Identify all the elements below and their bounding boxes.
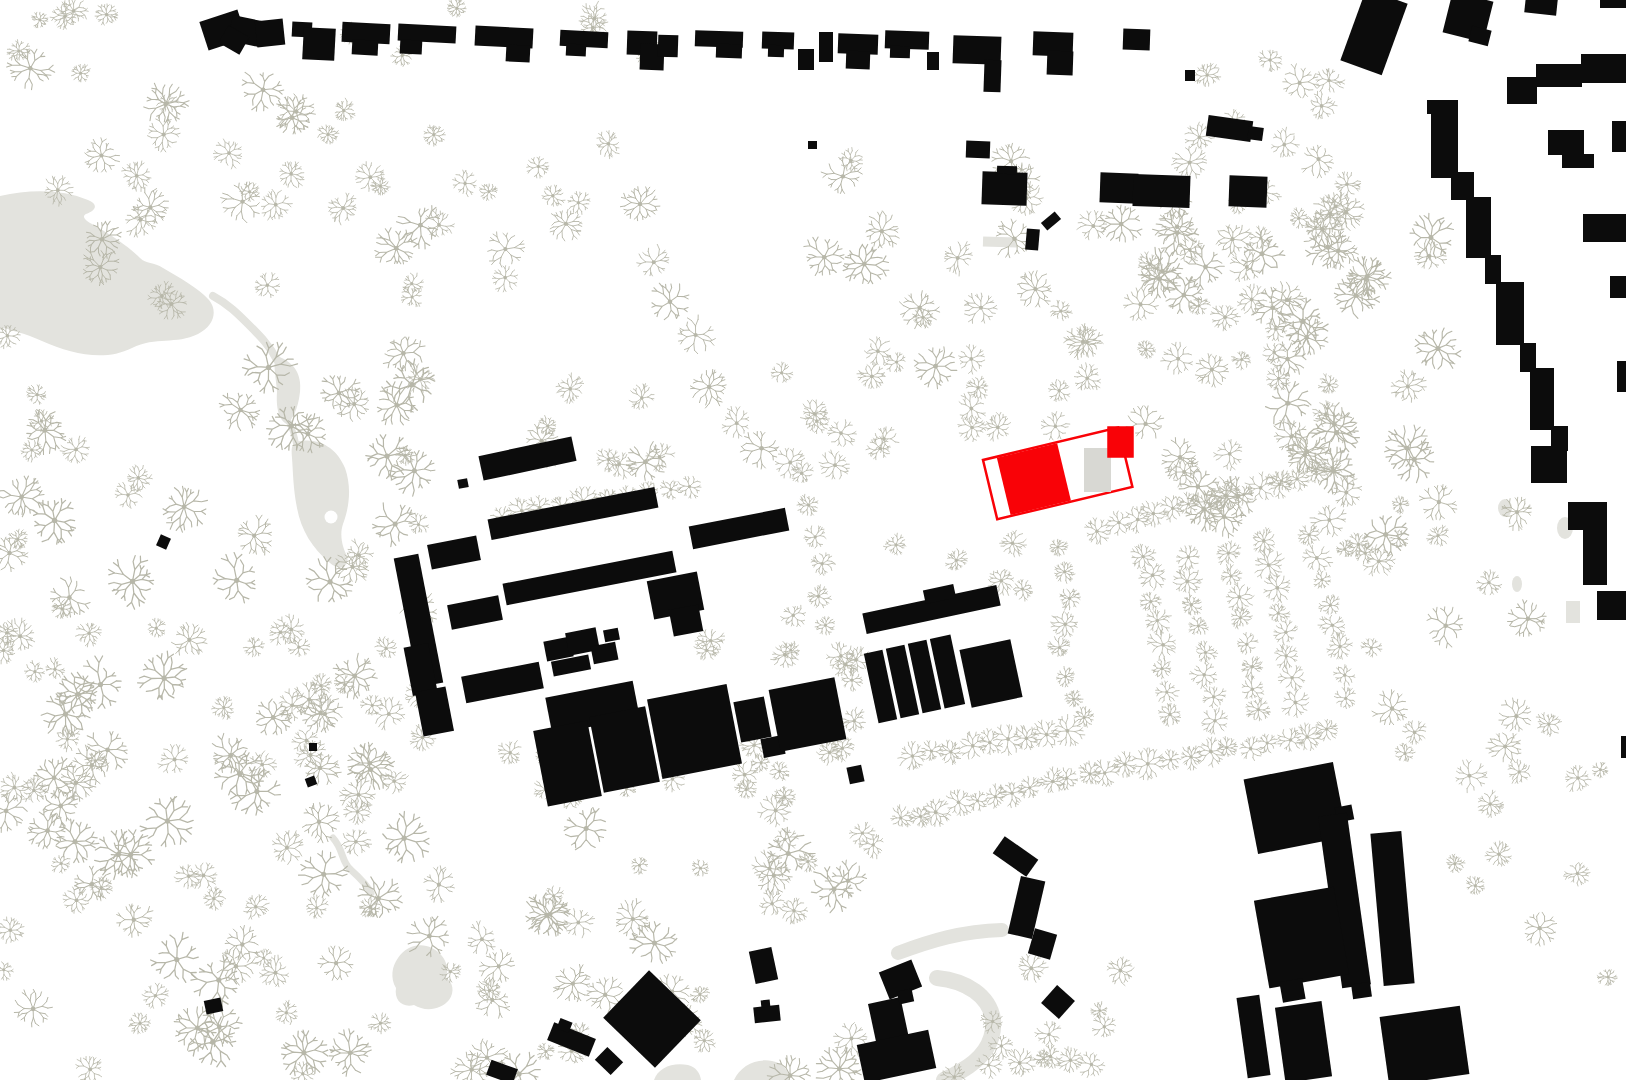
tree-trunk <box>28 66 33 71</box>
tree-trunk <box>261 87 266 92</box>
tree-trunk <box>1297 217 1300 220</box>
tree-trunk <box>1068 597 1071 600</box>
tree-trunk <box>1308 533 1311 536</box>
tree-trunk <box>99 153 103 157</box>
tree-trunk <box>187 638 191 642</box>
tree-trunk <box>165 819 170 824</box>
tree-trunk <box>105 748 110 753</box>
building <box>1123 29 1151 51</box>
tree-trunk <box>262 957 265 960</box>
tree-trunk <box>174 957 179 962</box>
tree-trunk <box>688 485 691 488</box>
tree-trunk <box>853 719 856 722</box>
tree-trunk <box>1273 351 1276 354</box>
tree-trunk <box>1197 624 1200 627</box>
tree-trunk <box>1321 578 1324 581</box>
tree-trunk <box>1227 551 1230 554</box>
tree-trunk <box>1236 494 1241 499</box>
tree-trunk <box>1000 579 1004 583</box>
building <box>846 51 871 70</box>
tree-trunk <box>1331 469 1336 474</box>
building <box>769 677 847 752</box>
tree-trunk <box>87 632 90 635</box>
tree-trunk <box>393 522 398 527</box>
tree-trunk <box>957 801 961 805</box>
tree-trunk <box>1028 786 1031 789</box>
tree-trunk <box>1240 358 1243 361</box>
building <box>658 35 679 58</box>
tree-trunk <box>1327 518 1331 522</box>
tree-trunk <box>2 649 5 652</box>
tree-trunk <box>1538 926 1542 930</box>
tree-trunk <box>1209 750 1213 754</box>
tree-trunk <box>1213 719 1217 723</box>
tree-trunk <box>698 993 701 996</box>
building <box>1562 154 1594 168</box>
tree-trunk <box>490 998 494 1002</box>
tree-trunk <box>1222 514 1227 519</box>
tree-trunk <box>18 634 22 638</box>
tree-trunk <box>162 676 167 681</box>
tree-trunk <box>1204 651 1207 654</box>
tree-trunk <box>921 316 924 319</box>
tree-trunk <box>271 715 276 720</box>
tree-trunk <box>1399 503 1402 506</box>
tree-trunk <box>1054 425 1058 429</box>
tree-trunk <box>1088 772 1091 775</box>
tree-trunk <box>652 260 656 264</box>
tree-trunk <box>58 804 63 809</box>
tree-trunk <box>89 882 94 887</box>
tree-trunk <box>437 223 441 227</box>
tree-trunk <box>73 839 78 844</box>
tree-trunk <box>155 627 158 630</box>
tree-trunk <box>135 174 139 178</box>
tree-trunk <box>759 446 764 451</box>
tree-trunk <box>1316 157 1320 161</box>
tree-trunk <box>934 810 938 814</box>
tree-trunk <box>668 299 673 304</box>
building <box>669 604 704 636</box>
tree-trunk <box>1327 79 1331 83</box>
tree-trunk <box>1202 673 1206 677</box>
tree-trunk <box>387 712 391 716</box>
tree-trunk <box>1117 521 1121 525</box>
building <box>1621 736 1626 758</box>
tree-trunk <box>1428 254 1432 258</box>
tree-trunk <box>1058 389 1061 392</box>
tree-trunk <box>745 788 748 791</box>
tree-trunk <box>94 759 97 762</box>
building <box>475 25 534 48</box>
tree-trunk <box>401 351 406 356</box>
building <box>1466 197 1491 258</box>
tree-trunk <box>548 912 553 917</box>
tree-trunk <box>328 579 333 584</box>
tree-trunk <box>1029 966 1033 970</box>
tree-trunk <box>1599 768 1602 771</box>
tree-trunk <box>202 874 206 878</box>
tree-trunk <box>1165 691 1168 694</box>
tree-trunk <box>301 1072 304 1075</box>
tree-trunk <box>517 1072 522 1077</box>
tree-trunk <box>760 761 763 764</box>
tree-trunk <box>699 867 702 870</box>
tree-trunk <box>1178 455 1183 460</box>
tree-trunk <box>671 777 674 780</box>
tree-trunk <box>254 789 259 794</box>
building <box>1597 591 1626 620</box>
building <box>1431 112 1458 178</box>
building <box>819 32 833 62</box>
tree-trunk <box>437 883 441 887</box>
tree-trunk <box>1436 534 1439 537</box>
tree-trunk <box>841 174 845 178</box>
building <box>981 171 1027 206</box>
tree-trunk <box>98 265 102 269</box>
tree-trunk <box>1289 738 1293 742</box>
building <box>1600 0 1626 8</box>
building <box>1612 121 1626 152</box>
tree-trunk <box>16 538 19 541</box>
tree-trunk <box>870 375 874 379</box>
tree-trunk <box>640 396 644 400</box>
tree-trunk <box>894 543 897 546</box>
tree-trunk <box>841 747 844 750</box>
tree-trunk <box>1298 81 1302 85</box>
tree-trunk <box>844 663 847 666</box>
tree-trunk <box>376 896 381 901</box>
tree-trunk <box>456 7 459 10</box>
tree-trunk <box>52 775 57 780</box>
tree-trunk <box>1090 1063 1093 1066</box>
tree-trunk <box>19 495 24 500</box>
tree-trunk <box>1377 559 1381 563</box>
tree-trunk <box>357 793 361 797</box>
building <box>1025 228 1040 250</box>
tree-trunk <box>60 862 63 865</box>
tree-trunk <box>306 432 311 437</box>
tree-trunk <box>592 16 596 20</box>
tree-trunk <box>297 646 300 649</box>
tree-trunk <box>631 917 635 921</box>
tree-trunk <box>7 551 11 555</box>
tree-trunk <box>828 751 831 754</box>
tree-trunk <box>248 190 251 193</box>
tree-trunk <box>138 1022 141 1025</box>
tree-trunk <box>1285 654 1288 657</box>
tree-trunk <box>1063 570 1066 573</box>
tree-trunk <box>116 852 121 857</box>
building <box>302 27 336 61</box>
tree-trunk <box>38 19 41 22</box>
tree-trunk <box>1176 357 1180 361</box>
tree-trunk <box>970 426 974 430</box>
building <box>1099 172 1138 203</box>
tree-trunk <box>105 13 108 16</box>
tree-trunk <box>1315 556 1319 560</box>
tree-trunk <box>1009 159 1013 163</box>
building <box>1047 51 1074 76</box>
tree-trunk <box>752 743 756 747</box>
tree-trunk <box>1095 530 1098 533</box>
tree-trunk <box>1156 619 1159 622</box>
building <box>1548 130 1584 155</box>
tree-trunk <box>187 875 191 879</box>
tree-trunk <box>352 674 357 679</box>
tree-trunk <box>652 941 657 946</box>
tree-trunk <box>1245 265 1249 269</box>
tree-trunk <box>638 202 642 206</box>
tree-trunk <box>783 838 786 841</box>
tree-trunk <box>1285 401 1290 406</box>
tree-trunk <box>368 175 372 179</box>
tree-trunk <box>1149 600 1152 603</box>
tree-trunk <box>638 864 641 867</box>
tree-trunk <box>643 460 648 465</box>
building <box>798 49 814 70</box>
tree-trunk <box>1453 862 1456 865</box>
building <box>1530 368 1554 430</box>
tree-trunk <box>56 188 60 192</box>
tree-trunk <box>318 766 322 770</box>
tree-trunk <box>342 109 345 112</box>
building <box>1380 1006 1470 1080</box>
tree-trunk <box>1576 872 1579 875</box>
tree-trunk <box>1119 222 1124 227</box>
tree-trunk <box>216 977 221 982</box>
building <box>753 1005 781 1024</box>
tree-trunk <box>1390 706 1394 710</box>
building <box>1583 528 1607 585</box>
tree-trunk <box>1285 298 1289 302</box>
tree-trunk <box>289 172 293 176</box>
building <box>1451 172 1474 200</box>
tree-trunk <box>1012 237 1016 241</box>
tree-trunk <box>148 205 152 209</box>
tree-trunk <box>1188 160 1192 164</box>
tree-trunk <box>1119 969 1123 973</box>
tree-trunk <box>1212 695 1215 698</box>
tree-trunk <box>1168 713 1171 716</box>
tree-trunk <box>788 461 792 465</box>
tree-trunk <box>1196 484 1201 489</box>
tree-trunk <box>1607 976 1610 979</box>
tree-trunk <box>240 942 244 946</box>
tree-trunk <box>919 815 922 818</box>
building <box>1536 64 1582 87</box>
tree-trunk <box>1383 532 1388 537</box>
tree-trunk <box>930 750 933 753</box>
tree-trunk <box>1315 470 1318 473</box>
tree-trunk <box>971 744 975 748</box>
tree-trunk <box>126 493 130 497</box>
tree-trunk <box>227 151 231 155</box>
building <box>1427 100 1458 114</box>
tree-trunk <box>392 779 396 783</box>
tree-trunk <box>326 133 329 136</box>
site-plan-map <box>0 0 1626 1080</box>
tree-trunk <box>1345 183 1349 187</box>
tree-trunk <box>953 1075 956 1078</box>
tree-trunk <box>537 165 540 168</box>
tree-trunk <box>427 934 432 939</box>
tree-trunk <box>783 653 787 657</box>
tree-trunk <box>669 488 672 491</box>
tree-trunk <box>1047 1033 1050 1036</box>
tree-trunk <box>955 559 958 562</box>
tree-trunk <box>480 937 484 941</box>
tree-trunk <box>33 670 36 673</box>
tree-trunk <box>394 403 399 408</box>
tree-trunk <box>66 737 69 740</box>
tree-trunk <box>1091 224 1095 228</box>
tree-trunk <box>607 142 611 146</box>
tree-trunk <box>1042 1057 1045 1060</box>
tree-trunk <box>32 789 35 792</box>
tree-trunk <box>394 246 399 251</box>
tree-trunk <box>9 929 13 933</box>
tree-trunk <box>1144 348 1147 351</box>
tree-trunk <box>402 836 407 841</box>
tree-trunk <box>1268 58 1271 61</box>
tree-trunk <box>1239 616 1242 619</box>
building <box>808 141 817 149</box>
tree-trunk <box>979 306 983 310</box>
tree-trunk <box>709 639 713 643</box>
tree-trunk <box>341 206 345 210</box>
tree-trunk <box>880 229 884 233</box>
tree-trunk <box>212 897 215 900</box>
tree-trunk <box>1175 230 1180 235</box>
tree-trunk <box>786 851 791 856</box>
tree-trunk <box>1331 624 1335 628</box>
tree-trunk <box>774 809 778 813</box>
tree-trunk <box>289 423 294 428</box>
tree-trunk <box>694 333 698 337</box>
tree-trunk <box>1066 729 1070 733</box>
building <box>768 45 784 58</box>
tree-trunk <box>1064 675 1067 678</box>
tree-trunk <box>1160 269 1165 274</box>
tree-trunk <box>234 964 238 968</box>
building <box>983 60 1001 93</box>
tree-trunk <box>260 763 264 767</box>
tree-trunk <box>546 425 549 428</box>
tree-trunk <box>837 1066 842 1071</box>
tree-trunk <box>1290 676 1294 680</box>
building <box>716 44 742 59</box>
building <box>457 478 469 489</box>
tree-trunk <box>1138 302 1142 306</box>
tree-trunk <box>1230 237 1234 241</box>
tree-trunk <box>1406 384 1410 388</box>
tree-trunk <box>817 595 820 598</box>
tree-trunk <box>418 223 423 228</box>
tree-trunk <box>1300 319 1305 324</box>
tree-trunk <box>833 463 837 467</box>
tree-trunk <box>418 377 422 381</box>
tree-trunk <box>1397 537 1400 540</box>
tree-trunk <box>1320 104 1324 108</box>
tree-trunk <box>6 334 9 337</box>
tree-trunk <box>290 115 295 120</box>
tree-trunk <box>839 431 843 435</box>
tree-trunk <box>1228 452 1232 456</box>
tree-trunk <box>45 828 50 833</box>
tree-trunk <box>13 786 17 790</box>
tree-trunk <box>1365 274 1370 279</box>
tree-trunk <box>545 1050 548 1053</box>
tree-trunk <box>98 682 103 687</box>
tree-trunk <box>1223 494 1227 498</box>
tree-trunk <box>74 448 78 452</box>
tree-trunk <box>463 182 466 185</box>
tree-trunk <box>1033 287 1037 291</box>
tree-trunk <box>1325 727 1328 730</box>
building <box>1351 982 1372 999</box>
tree-trunk <box>1249 747 1253 751</box>
tree-trunk <box>385 454 390 459</box>
tree-trunk <box>1303 453 1307 457</box>
tree-trunk <box>385 647 388 650</box>
tree-trunk <box>1334 205 1338 209</box>
tree-trunk <box>132 918 136 922</box>
tree-trunk <box>807 504 810 507</box>
tree-trunk <box>253 645 256 648</box>
tree-trunk <box>1083 716 1086 719</box>
tree-trunk <box>1136 518 1140 522</box>
tree-trunk <box>1296 477 1299 480</box>
tree-trunk <box>305 739 309 743</box>
tree-trunk <box>1190 603 1193 606</box>
tree-trunk <box>1344 210 1348 214</box>
tree-trunk <box>79 72 82 75</box>
tree-trunk <box>1098 1009 1101 1012</box>
tree-trunk <box>401 54 404 57</box>
tree-trunk <box>1187 502 1190 505</box>
tree-trunk <box>289 628 293 632</box>
tree-trunk <box>1018 1061 1022 1065</box>
tree-trunk <box>1189 755 1192 758</box>
tree-trunk <box>1021 588 1024 591</box>
tree-trunk <box>31 1007 36 1012</box>
tree-trunk <box>800 472 803 475</box>
tree-trunk <box>1025 737 1029 741</box>
tree-trunk <box>1251 688 1254 691</box>
tree-trunk <box>899 816 902 819</box>
tree-trunk <box>1141 555 1144 558</box>
tree-trunk <box>1275 586 1279 590</box>
tree-trunk <box>166 101 169 104</box>
tree-trunk <box>743 773 747 777</box>
tree-trunk <box>1011 542 1014 545</box>
building-red-corner <box>1108 427 1133 457</box>
tree-trunk <box>703 1039 706 1042</box>
tree-trunk <box>1058 646 1061 649</box>
tree-trunk <box>969 407 973 411</box>
tree-trunk <box>815 419 819 423</box>
tree-trunk <box>1151 573 1155 577</box>
tree-trunk <box>1413 731 1417 735</box>
building <box>1610 276 1626 298</box>
tree-trunk <box>1257 708 1260 711</box>
tree-trunk <box>911 754 915 758</box>
building <box>506 44 531 62</box>
tree-trunk <box>571 981 575 985</box>
tree-trunk <box>1225 746 1228 749</box>
tree-trunk <box>1169 758 1172 761</box>
